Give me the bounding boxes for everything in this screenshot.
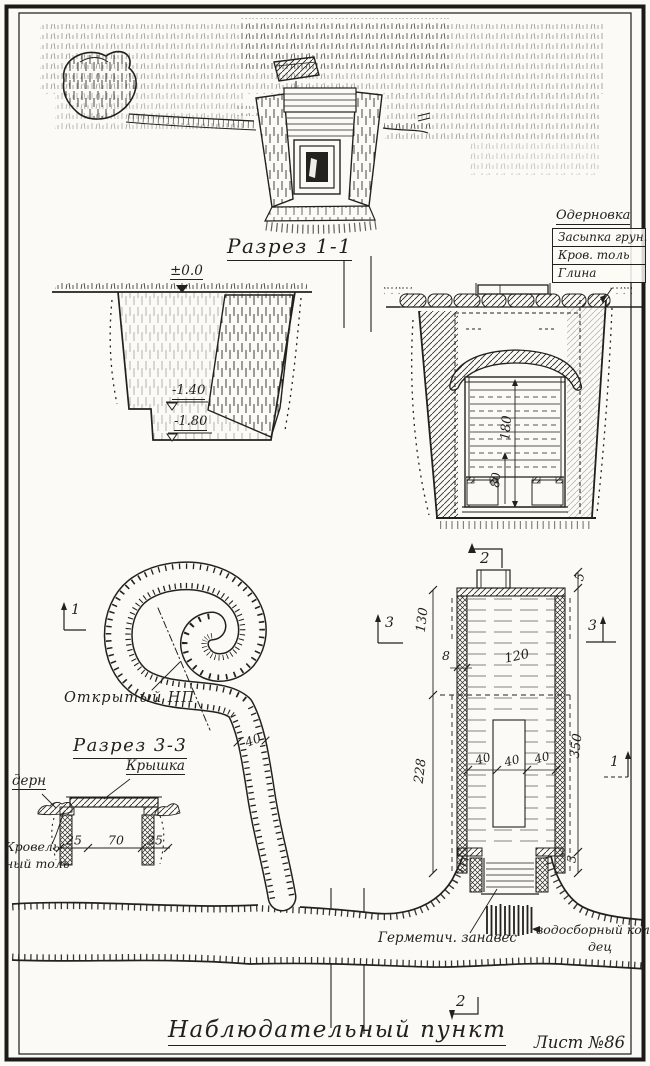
dim-bench-height: 80: [489, 472, 503, 488]
elevation-minus180-label: -1.80: [174, 415, 207, 431]
cover-dim-70: 70: [108, 833, 124, 846]
section-marker-2-bottom: 2: [456, 994, 466, 1010]
plan-dim-228: 228: [413, 758, 430, 784]
section-marker-1-left: 1: [71, 603, 80, 618]
plan-dim-130: 130: [415, 607, 432, 633]
layer-callout-box: Засыпка грун. Кров. толь Глина: [552, 228, 646, 283]
layer-row-clay: Глина: [553, 265, 645, 282]
sheet-number: Лист №86: [534, 1034, 625, 1051]
sheet-main-title: Наблюдательный пункт: [168, 1018, 506, 1046]
layer-row-backfill: Засыпка грун.: [553, 229, 645, 247]
roofing-felt-label-line1: Кровель-: [5, 840, 64, 853]
layer-row-roofing-felt: Кров. толь: [553, 247, 645, 265]
cover-dim-25-right: 25: [147, 833, 163, 846]
section-marker-3-left: 3: [385, 616, 394, 631]
layer-callout-top: Одерновка: [556, 209, 630, 225]
drawing-sheet: Разрез 1-1 ±0.0 -1.40 -1.80 Одерновка За…: [0, 0, 650, 1066]
plan-dim-350: 350: [569, 733, 586, 759]
section-marker-3-right: 3: [588, 619, 597, 634]
water-well-label-line1: водосборный коло-: [536, 923, 650, 936]
main-trench: [12, 856, 645, 969]
section-marker-1-right: 1: [610, 755, 619, 770]
section-1-1-title: Разрез 1-1: [227, 236, 352, 261]
cover-dim-25-left: 25: [66, 833, 82, 846]
roofing-felt-label-line2: ный толь: [5, 857, 70, 870]
water-well-label-line2: дец: [588, 940, 612, 953]
open-np-label: Открытый НП: [64, 691, 195, 706]
turf-label: дерн: [12, 774, 46, 790]
dim-interior-height: 180: [499, 415, 515, 441]
perspective-sketch: [40, 18, 605, 229]
drawing-linework: [0, 0, 650, 1066]
plan-dim-3: 3: [565, 854, 578, 863]
plan-dim-8: 8: [442, 649, 450, 662]
cover-label: Крышка: [126, 759, 185, 775]
section-3-3-title: Разрез 3-3: [73, 737, 187, 759]
section-marker-2-top: 2: [480, 551, 490, 567]
elevation-minus140-label: -1.40: [172, 384, 205, 400]
elevation-zero-label: ±0.0: [170, 264, 203, 280]
hermetic-curtain-label: Герметич. занавес: [378, 931, 517, 945]
